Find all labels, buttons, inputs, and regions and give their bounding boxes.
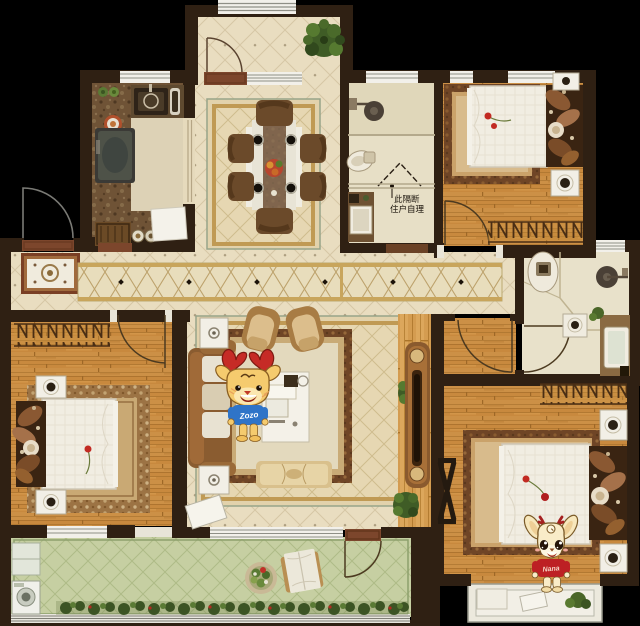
- svg-text:住户自理: 住户自理: [390, 204, 425, 214]
- svg-text:Nana: Nana: [542, 565, 560, 573]
- svg-text:此隔断: 此隔断: [394, 194, 420, 204]
